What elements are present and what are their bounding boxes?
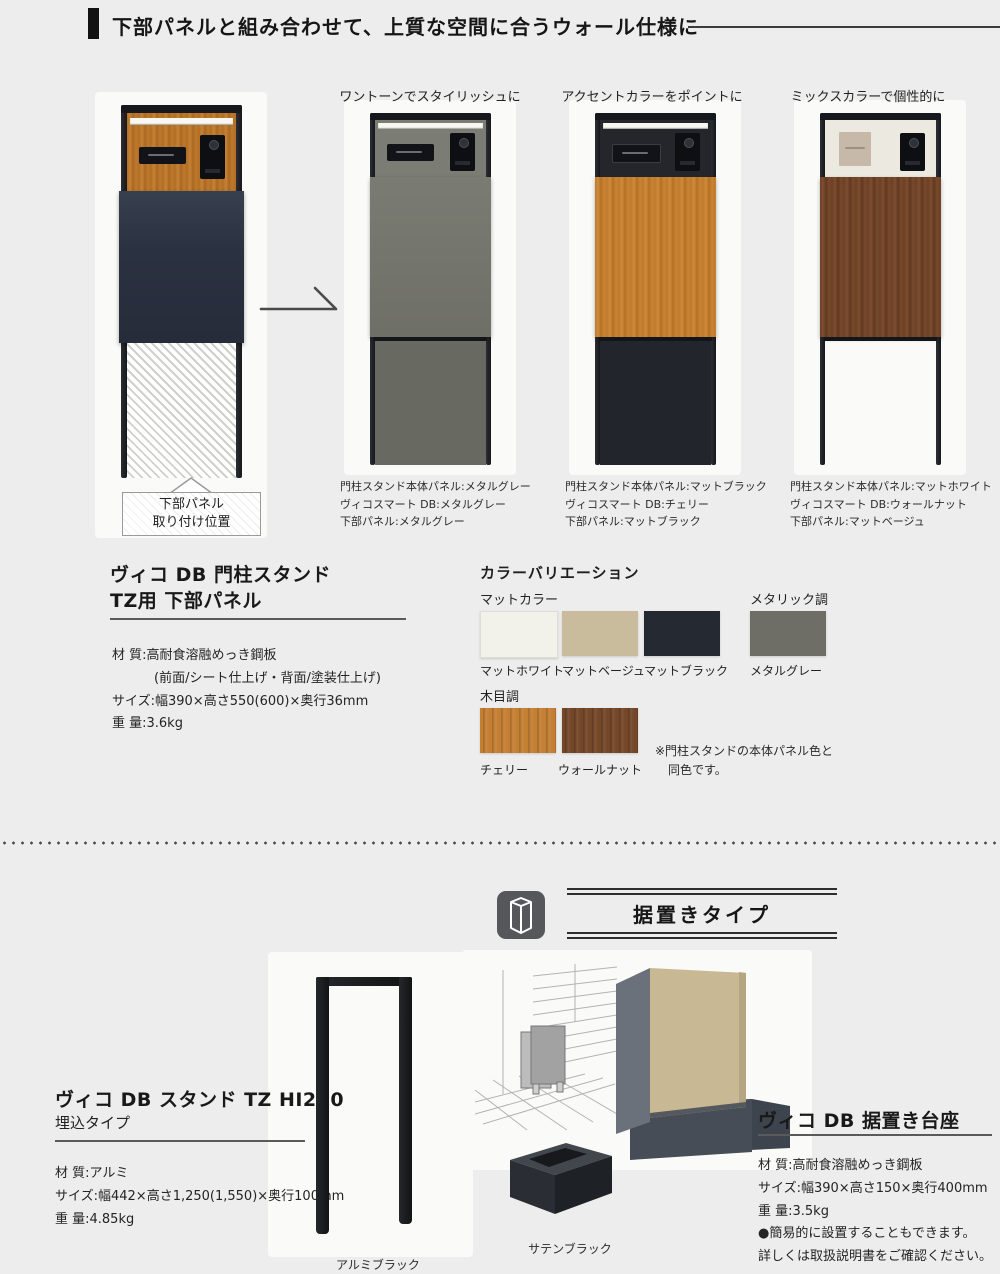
- swatch-label: メタルグレー: [750, 662, 822, 679]
- stand-image-label: アルミブラック: [318, 1256, 438, 1273]
- header-rule: [688, 26, 1000, 28]
- lower-panel: [375, 341, 486, 465]
- pillar-top-panel-metalgray: [375, 120, 486, 177]
- pillar-product-mix: [820, 113, 941, 465]
- pillar-top-panel-mattewhite: [825, 120, 936, 177]
- variant-label-accent: アクセントカラーをポイントに: [542, 86, 762, 105]
- pillar-body-panel-cherry: [595, 177, 716, 337]
- badge-rule: [567, 937, 837, 939]
- lower-panel-callout: 下部パネル 取り付け位置: [122, 492, 261, 536]
- product-specs: 材 質:高耐食溶融めっき鋼板 (前面/シート仕上げ・背面/塗装仕上げ) サイズ:…: [112, 645, 381, 736]
- intercom-icon: [675, 133, 700, 171]
- swatch-label: ウォールナット: [558, 761, 642, 778]
- variant-caption-mix: 門柱スタンド本体パネル:マットホワイト ヴィコスマート DB:ウォールナット 下…: [790, 478, 1000, 531]
- mail-slot: [130, 118, 233, 125]
- header-accent-bar: [88, 8, 99, 39]
- lower-panel: [825, 341, 936, 465]
- cube-icon: [497, 891, 545, 939]
- intercom-icon: [450, 133, 475, 171]
- catalog-page: 下部パネルと組み合わせて、上質な空間に合うウォール仕様に ワントーンでスタイリッ…: [0, 0, 1000, 1274]
- nameplate: [612, 144, 661, 163]
- badge-rule: [567, 932, 837, 934]
- swatch-walnut: [562, 708, 638, 753]
- pillar-product-onetone: [370, 113, 491, 465]
- stand-specs: 材 質:アルミ サイズ:幅442×高さ1,250(1,550)×奥行100mm …: [55, 1163, 344, 1231]
- swatch-label: マットホワイト: [480, 662, 564, 679]
- pillar-product-base: [121, 105, 242, 478]
- nameplate: [139, 147, 186, 164]
- swatch-label: チェリー: [480, 761, 528, 778]
- mail-slot: [378, 123, 483, 129]
- pillar-top-cap: [820, 113, 941, 120]
- callout-text: 取り付け位置: [152, 514, 230, 532]
- variant-caption-onetone: 門柱スタンド本体パネル:メタルグレー ヴィコスマート DB:メタルグレー 下部パ…: [340, 478, 565, 531]
- product-title-line1: ヴィコ DB 門柱スタンド: [110, 560, 331, 587]
- pillar-top-cap: [121, 105, 242, 113]
- base-title: ヴィコ DB 据置き台座: [758, 1106, 959, 1133]
- base-specs: 材 質:高耐食溶融めっき鋼板 サイズ:幅390×高さ150×奥行400mm 重 …: [758, 1155, 992, 1269]
- swatch-matte-white: [480, 611, 558, 658]
- nameplate: [387, 144, 434, 161]
- nameplate: [839, 132, 871, 166]
- title-underline: [110, 618, 406, 620]
- group-label-matte: マットカラー: [480, 589, 558, 608]
- pillar-body-panel: [370, 177, 491, 337]
- lower-panel: [600, 341, 711, 465]
- stand-frame-left-post: [316, 977, 329, 1234]
- intercom-icon: [900, 133, 925, 171]
- color-variations-title: カラーバリエーション: [480, 562, 640, 583]
- pillar-body-panel-walnut: [820, 177, 941, 337]
- swatch-label: マットブラック: [644, 662, 728, 679]
- pedestal-type-badge: [497, 891, 545, 939]
- variant-caption-accent: 門柱スタンド本体パネル:マットブラック ヴィコスマート DB:チェリー 下部パネ…: [565, 478, 790, 531]
- group-label-metallic: メタリック調: [750, 589, 828, 608]
- variant-label-onetone: ワントーンでスタイリッシュに: [320, 86, 540, 105]
- swatch-matte-black: [644, 611, 720, 656]
- pedestal-type-title: 据置きタイプ: [567, 899, 837, 928]
- color-note: ※門柱スタンドの本体パネル色と 同色です。: [655, 742, 833, 780]
- variant-label-mix: ミックスカラーで個性的に: [758, 86, 978, 105]
- swatch-label: マットベージュ: [562, 662, 645, 679]
- pillar-top-panel-matteblack: [600, 120, 711, 177]
- badge-rule: [567, 893, 837, 895]
- arrow-right-icon: [258, 282, 340, 316]
- pillar-top-panel-cherry: [127, 113, 236, 193]
- stand-subtitle: 埋込タイプ: [55, 1112, 130, 1133]
- dotted-divider: [0, 841, 1000, 845]
- pedestal-image-label: サテンブラック: [500, 1240, 640, 1257]
- swatch-matte-beige: [562, 611, 638, 656]
- intercom-icon: [200, 135, 225, 179]
- stand-title: ヴィコ DB スタンド TZ HI250: [55, 1085, 344, 1112]
- title-underline: [758, 1134, 992, 1136]
- swatch-cherry: [480, 708, 556, 753]
- pillar-top-cap: [595, 113, 716, 120]
- pillar-product-accent: [595, 113, 716, 465]
- badge-rule: [567, 888, 837, 890]
- stand-frame-right-post: [399, 977, 412, 1224]
- group-label-wood: 木目調: [480, 686, 519, 705]
- callout-text: 下部パネル: [159, 496, 224, 514]
- product-title-line2: TZ用 下部パネル: [110, 586, 262, 613]
- stand-frame-top: [316, 977, 412, 986]
- page-title: 下部パネルと組み合わせて、上質な空間に合うウォール仕様に: [112, 11, 699, 40]
- mail-slot: [603, 123, 708, 129]
- lower-panel-position-hatch: [127, 343, 236, 478]
- swatch-metal-gray: [750, 611, 826, 656]
- pedestal-product-image: [488, 1138, 623, 1223]
- pillar-top-cap: [370, 113, 491, 120]
- pillar-body-panel: [119, 191, 244, 343]
- installation-sketch: [475, 962, 617, 1132]
- title-underline: [55, 1140, 305, 1142]
